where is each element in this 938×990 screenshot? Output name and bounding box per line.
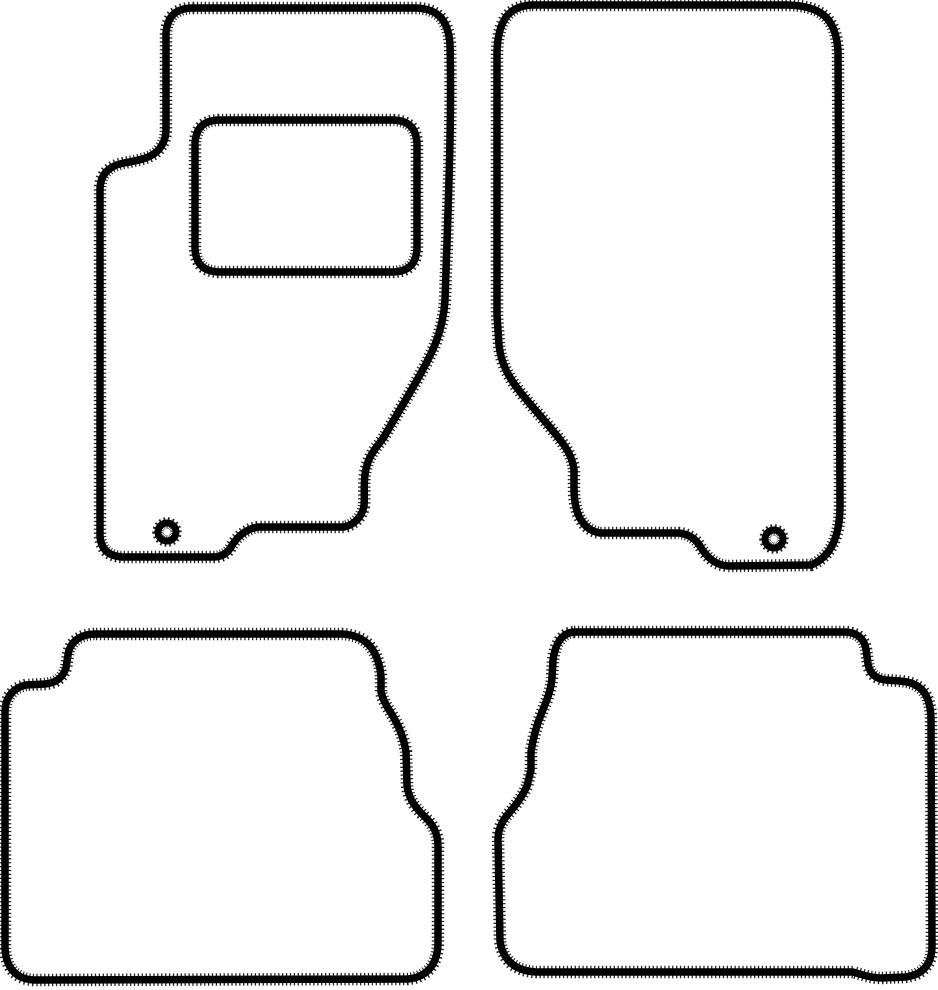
rear-left-mat-outline-texture (5, 634, 438, 980)
front-left-mat-heel-pad-texture (195, 120, 417, 272)
rear-left-mat (5, 634, 438, 980)
front-right-mat-eyelet (765, 530, 783, 548)
rear-right-mat (498, 632, 932, 978)
rear-right-mat-outline (498, 632, 932, 978)
front-right-mat-outline-texture (497, 5, 840, 566)
front-left-mat-eyelet (158, 523, 176, 541)
front-right-mat-outline (497, 5, 840, 566)
front-left-mat-outline-texture (100, 8, 451, 557)
rear-left-mat-outline (5, 634, 438, 980)
car-mat-template-canvas (0, 0, 938, 990)
mat-set-drawing (0, 0, 938, 990)
front-left-mat (100, 8, 451, 557)
rear-right-mat-outline-texture (498, 632, 932, 978)
front-left-mat-outline (100, 8, 451, 557)
front-right-mat (497, 5, 840, 566)
front-left-mat-heel-pad (195, 120, 417, 272)
